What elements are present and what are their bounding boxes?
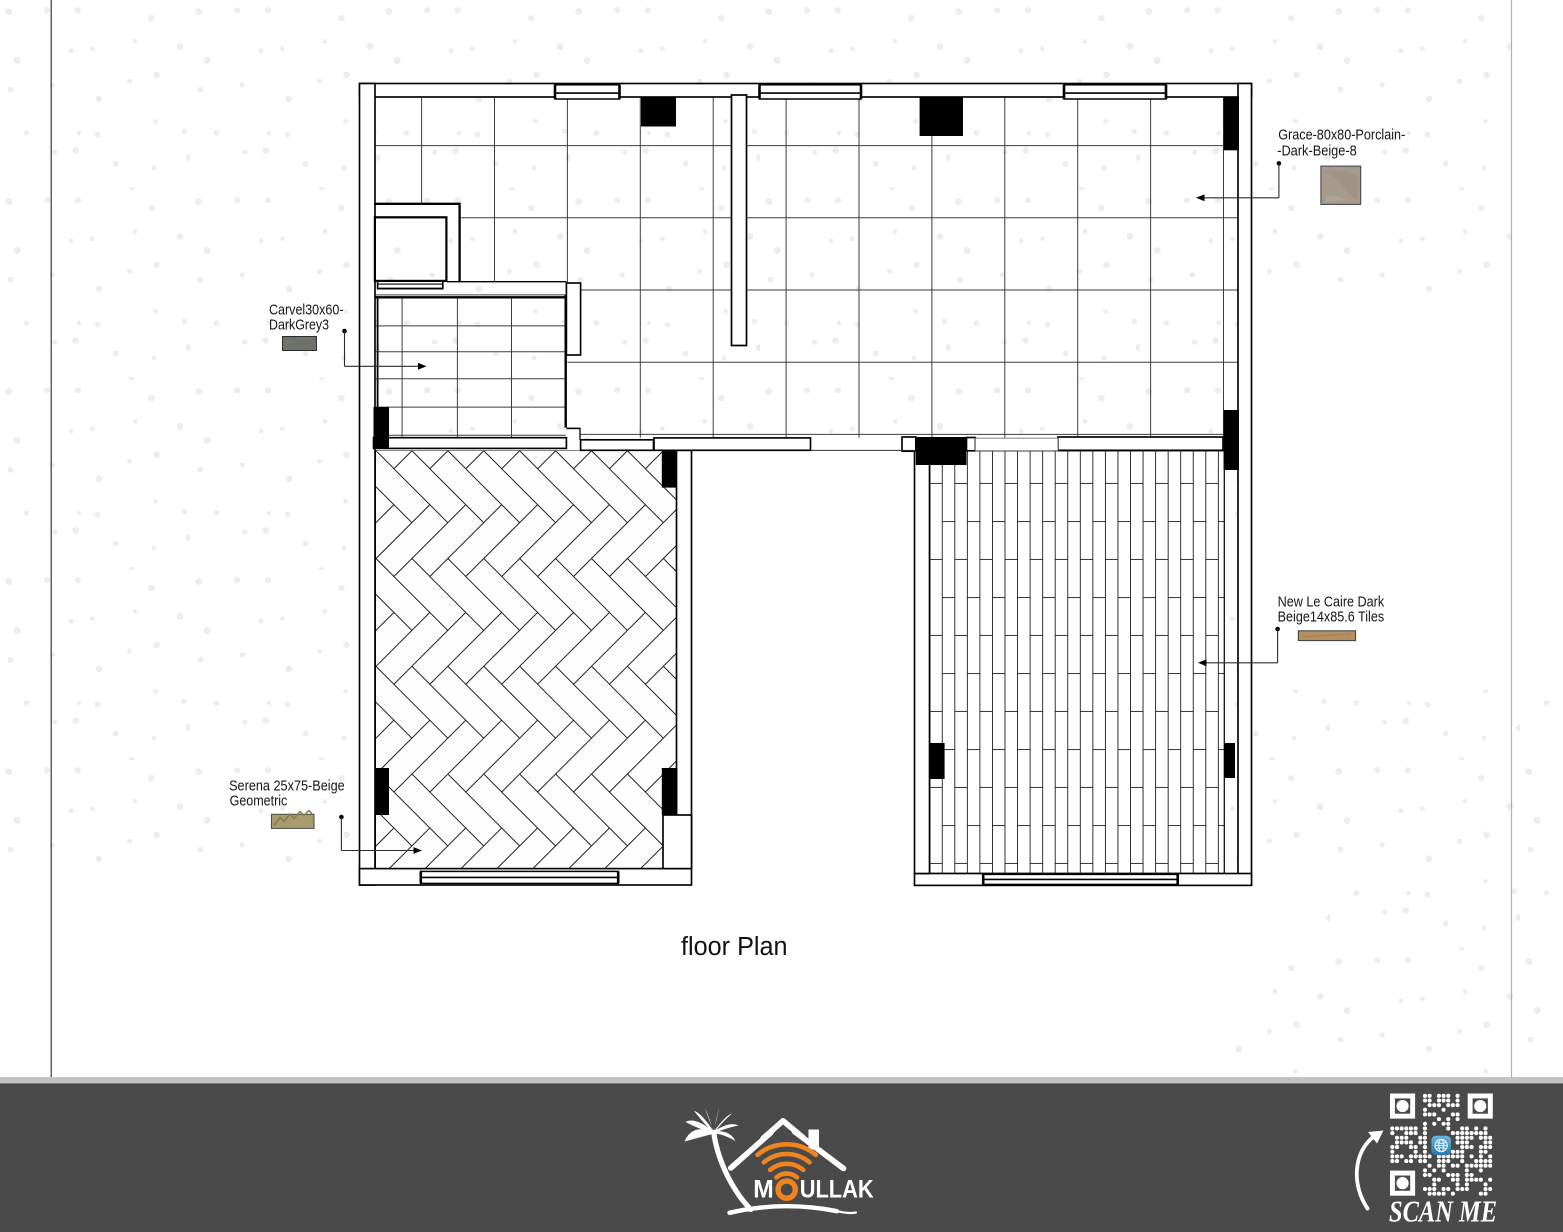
svg-text:DarkGrey3: DarkGrey3 [269,316,329,333]
svg-text:Grace-80x80-Porclain-: Grace-80x80-Porclain- [1278,127,1405,144]
svg-text:floor Plan: floor Plan [681,933,788,961]
svg-text:Beige14x85.6 Tiles: Beige14x85.6 Tiles [1278,609,1385,626]
svg-text:-Dark-Beige-8: -Dark-Beige-8 [1277,143,1357,160]
svg-text:M: M [753,1177,774,1204]
svg-text:SCAN ME: SCAN ME [1389,1194,1497,1229]
svg-text:ULLAK: ULLAK [800,1177,874,1204]
svg-text:Geometric: Geometric [230,793,288,810]
